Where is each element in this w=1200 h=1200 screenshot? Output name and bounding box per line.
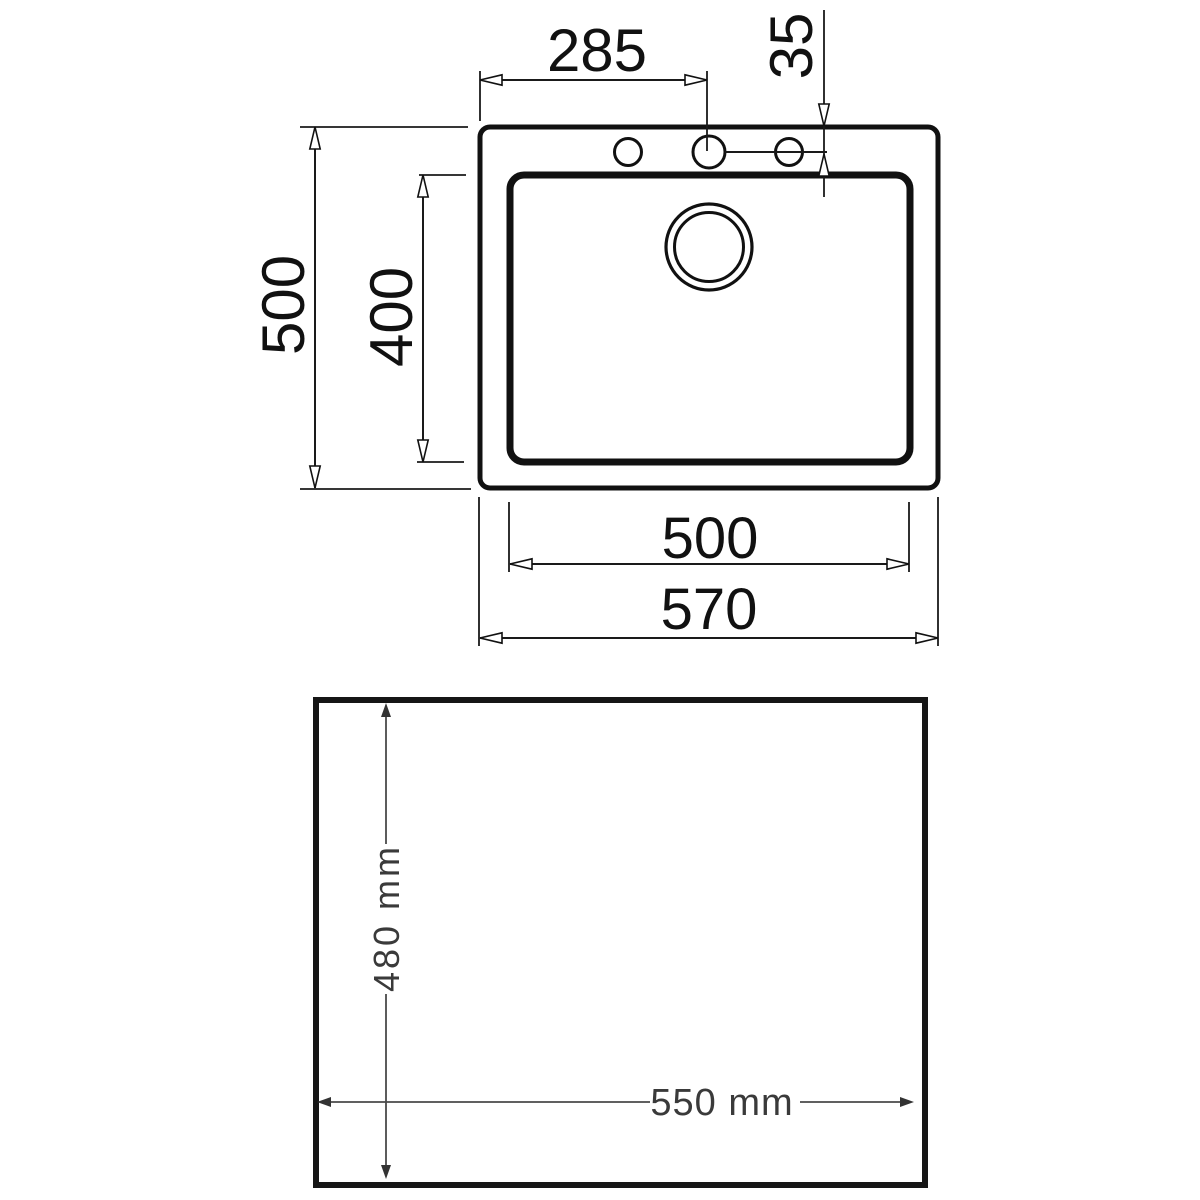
dim-550-label: 550 mm <box>650 1082 793 1124</box>
dim-500l-arrow-up <box>310 127 320 149</box>
dim-570-label: 570 <box>661 577 758 642</box>
dim-400-arrow-down <box>418 440 428 462</box>
cutout-outline <box>316 700 925 1185</box>
dim-570-arrow-right <box>916 633 938 643</box>
cutout-view: 480 mm 550 mm <box>316 700 925 1185</box>
dim-480-label: 480 mm <box>366 844 407 992</box>
dim-500b-arrow-left <box>510 559 532 569</box>
dim-500b-arrow-right <box>887 559 909 569</box>
sink-bowl-outline <box>510 175 910 462</box>
dim-500l-label: 500 <box>250 255 317 355</box>
dim-285-arrow-right <box>685 75 707 85</box>
dim-500l-arrow-down <box>310 466 320 488</box>
dim-285-label: 285 <box>547 17 647 84</box>
sink-dimension-diagram: 285 35 500 400 500 <box>0 0 1200 1200</box>
dim-35-label: 35 <box>758 13 825 80</box>
dim-35-arrow-down <box>819 104 829 126</box>
dim-bowl-width: 500 <box>509 502 909 572</box>
faucet-hole-center <box>693 136 725 168</box>
dim-bowl-depth: 400 <box>358 175 466 462</box>
dim-285-arrow-left <box>480 75 502 85</box>
dim-400-label: 400 <box>358 267 425 367</box>
dim-570-arrow-left <box>480 633 502 643</box>
dim-500b-label: 500 <box>662 506 759 571</box>
faucet-hole-left <box>615 139 642 166</box>
dim-400-arrow-up <box>418 175 428 197</box>
technical-drawing-page: 285 35 500 400 500 <box>0 0 1200 1200</box>
sink-top-view <box>480 127 938 488</box>
